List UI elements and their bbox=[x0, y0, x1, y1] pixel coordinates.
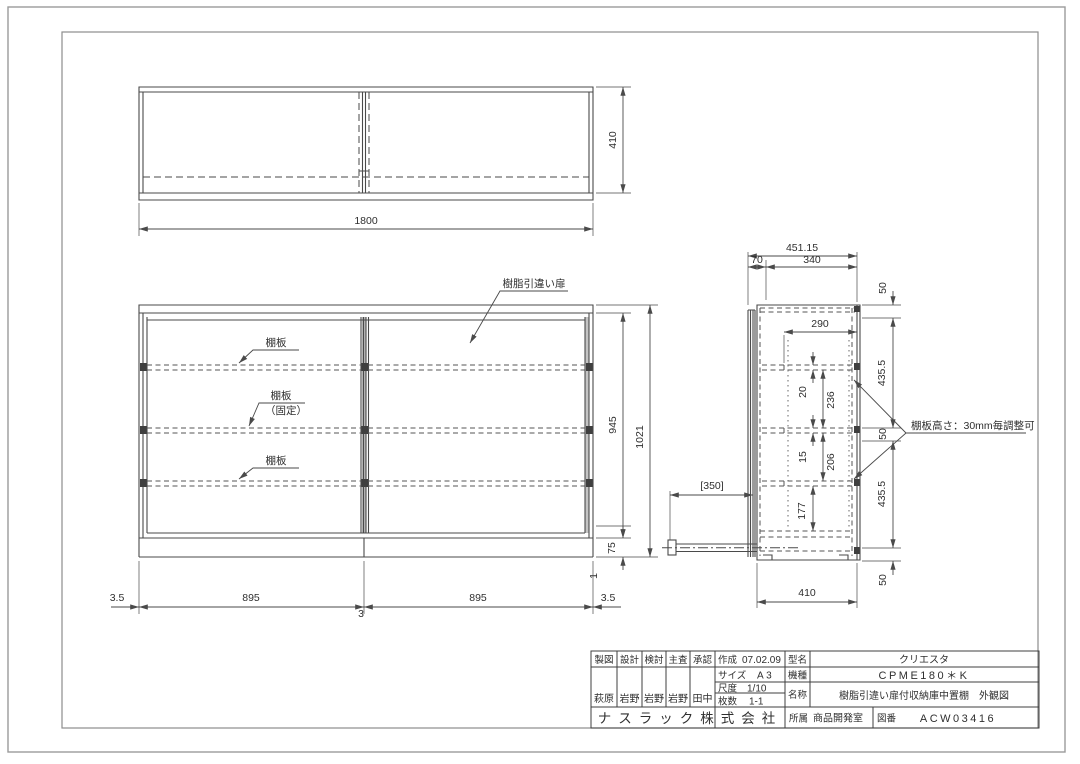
dim-shelf-depth: 290 bbox=[811, 318, 829, 330]
leader-sliding-door bbox=[470, 291, 568, 343]
dept-value: 商品開発室 bbox=[813, 712, 863, 725]
ext-lines bbox=[596, 305, 658, 557]
size-value: A3 bbox=[757, 671, 774, 682]
dim-space-2: 206 bbox=[825, 453, 837, 471]
type-value: CPME180＊K bbox=[879, 670, 970, 682]
sheets-label: 枚数 bbox=[718, 696, 738, 708]
ext-lines bbox=[757, 563, 857, 608]
note-shelf-adjustable: 棚板高さ：30mm毎調整可 bbox=[911, 419, 1035, 432]
front-view: 棚板 棚板 （固定） 棚板 樹脂引違い扉 945 1021 75 1 3.5 8… bbox=[110, 277, 658, 620]
dim-right-435b: 435.5 bbox=[876, 481, 888, 507]
model-label: 型名 bbox=[788, 654, 807, 666]
created-value: 07.02.09 bbox=[742, 655, 781, 666]
ext-lines bbox=[139, 561, 593, 614]
dim-right-435a: 435.5 bbox=[876, 360, 888, 386]
created-label: 作成 bbox=[718, 654, 738, 666]
company-name: ナスラック株式会社 bbox=[598, 711, 783, 726]
sheets-value: 1-1 bbox=[749, 697, 764, 708]
stamp-reviewed: 岩野 bbox=[644, 692, 664, 705]
top-view: 410 1800 bbox=[139, 87, 631, 236]
dim-top-depth: 340 bbox=[803, 254, 821, 266]
stamp-designed: 岩野 bbox=[620, 692, 640, 705]
col-reviewed: 検討 bbox=[644, 654, 664, 666]
name-value: 樹脂引違い扉付収納庫中置棚 外観図 bbox=[839, 689, 1009, 702]
label-shelf-bottom: 棚板 bbox=[266, 454, 287, 467]
drawing-sheet: 410 1800 棚板 棚板 （固定） 棚板 樹脂引違い扉 945 1021 bbox=[0, 0, 1080, 764]
col-chief: 主査 bbox=[668, 654, 688, 666]
top-view-outline bbox=[139, 87, 593, 200]
dim-right-50b: 50 bbox=[877, 428, 889, 440]
label-shelf-mid-sub: （固定） bbox=[265, 404, 307, 417]
stamp-approved: 田中 bbox=[693, 692, 713, 705]
dim-edge-right: 3.5 bbox=[601, 592, 616, 604]
scale-value: 1/10 bbox=[747, 684, 767, 695]
size-label: サイズ bbox=[718, 670, 747, 682]
dim-bottom-depth: 410 bbox=[798, 587, 816, 599]
col-drafted: 製図 bbox=[594, 654, 613, 666]
dim-total-height: 1021 bbox=[634, 425, 646, 449]
name-label: 名称 bbox=[788, 689, 808, 701]
dim-gap: 1 bbox=[588, 573, 600, 579]
title-block: 製図 設計 検討 主査 承認 萩原 岩野 岩野 岩野 田中 作成 07.02.0… bbox=[591, 651, 1039, 728]
side-view: 451.15 70 340 290 20 236 15 206 177 [350… bbox=[662, 242, 1035, 608]
dim-top-depth: 410 bbox=[607, 131, 619, 149]
outer-border bbox=[8, 7, 1065, 752]
drawing-no-label: 図番 bbox=[877, 713, 897, 725]
dim-half-left: 895 bbox=[242, 592, 260, 604]
dim-space-3: 177 bbox=[796, 502, 808, 520]
dim-door-height: 945 bbox=[607, 416, 619, 434]
shelf-hole-lines bbox=[788, 340, 849, 528]
cad-drawing: 410 1800 棚板 棚板 （固定） 棚板 樹脂引違い扉 945 1021 bbox=[0, 0, 1080, 764]
col-approved: 承認 bbox=[693, 654, 713, 666]
col-designed: 設計 bbox=[620, 654, 640, 666]
dim-right-50a: 50 bbox=[877, 282, 889, 294]
dim-front-offset: 70 bbox=[751, 254, 763, 266]
dim-half-right: 895 bbox=[469, 592, 487, 604]
label-sliding-door: 樹脂引違い扉 bbox=[503, 277, 566, 290]
dim-base-height: 75 bbox=[606, 542, 618, 554]
note-leader-up bbox=[854, 380, 906, 433]
scale-label: 尺度 bbox=[718, 683, 738, 695]
stamp-chief: 岩野 bbox=[668, 692, 688, 705]
dim-space-1: 236 bbox=[825, 391, 837, 409]
dim-overall-depth: 451.15 bbox=[786, 242, 818, 254]
dept-label: 所属 bbox=[789, 714, 808, 725]
dim-shelf-thickness-1: 20 bbox=[797, 386, 809, 398]
dim-top-width: 1800 bbox=[354, 215, 378, 227]
type-label: 機種 bbox=[788, 670, 808, 682]
dim-center-gap: 3 bbox=[358, 608, 364, 620]
label-shelf-mid: 棚板 bbox=[271, 389, 292, 402]
model-value: クリエスタ bbox=[899, 654, 949, 666]
counter-outline bbox=[662, 540, 800, 555]
dim-counter-depth: [350] bbox=[700, 480, 723, 492]
drawing-no-value: ACW03416 bbox=[920, 713, 996, 725]
leader-shelf-top bbox=[239, 350, 299, 363]
dim-shelf-thickness-2: 15 bbox=[797, 451, 809, 463]
dim-right-50c: 50 bbox=[877, 574, 889, 586]
label-shelf-top: 棚板 bbox=[266, 336, 287, 349]
stamp-drafted: 萩原 bbox=[594, 693, 614, 705]
leader-shelf-bottom bbox=[239, 468, 299, 479]
dim-edge-left: 3.5 bbox=[110, 592, 125, 604]
drawing-frame bbox=[62, 32, 1038, 728]
